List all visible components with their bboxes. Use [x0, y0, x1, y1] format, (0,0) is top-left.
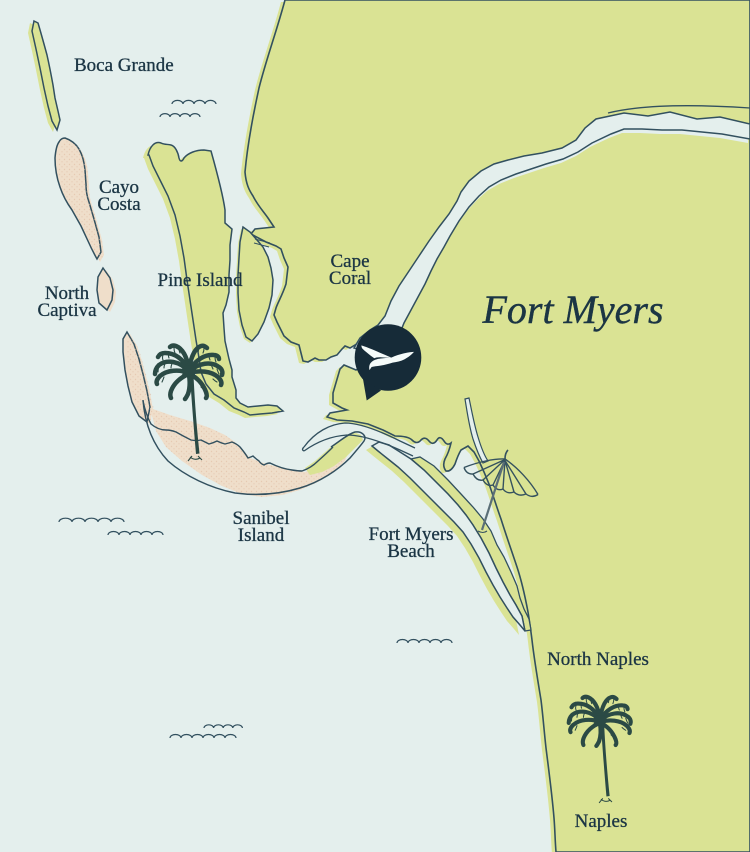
svg-text:Coral: Coral [329, 268, 371, 289]
svg-text:Beach: Beach [387, 541, 435, 562]
svg-text:Boca Grande: Boca Grande [74, 55, 174, 76]
svg-text:North Naples: North Naples [547, 649, 649, 670]
svg-text:Costa: Costa [97, 194, 141, 215]
svg-text:Naples: Naples [575, 811, 628, 832]
svg-text:Pine Island: Pine Island [158, 270, 243, 291]
svg-text:Captiva: Captiva [37, 300, 97, 321]
svg-text:Island: Island [238, 525, 285, 546]
svg-text:Fort Myers: Fort Myers [481, 287, 663, 332]
